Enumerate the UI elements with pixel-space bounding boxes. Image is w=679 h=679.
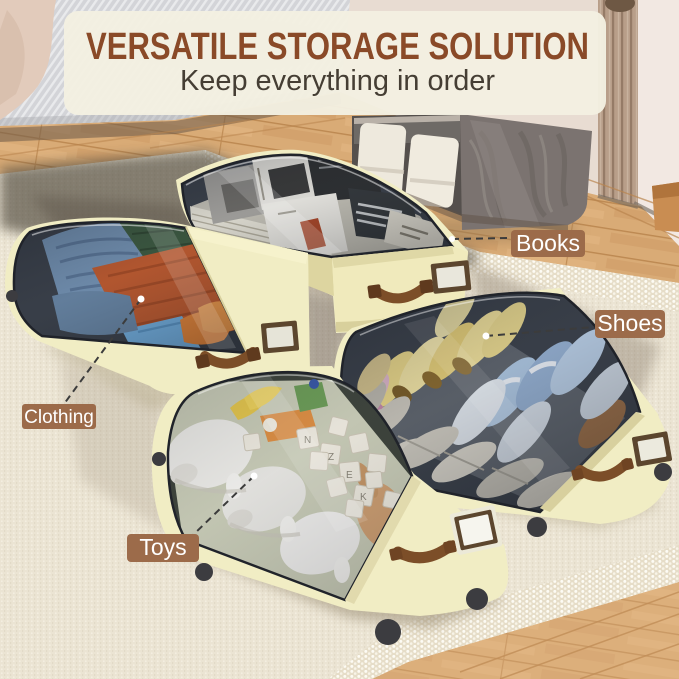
- svg-text:Clothing: Clothing: [24, 407, 94, 428]
- svg-text:Shoes: Shoes: [597, 310, 662, 336]
- svg-text:Keep everything in order: Keep everything in order: [180, 65, 495, 97]
- svg-text:Toys: Toys: [139, 534, 186, 560]
- svg-text:Books: Books: [516, 230, 580, 256]
- svg-text:VERSATILE STORAGE SOLUTION: VERSATILE STORAGE SOLUTION: [86, 26, 589, 68]
